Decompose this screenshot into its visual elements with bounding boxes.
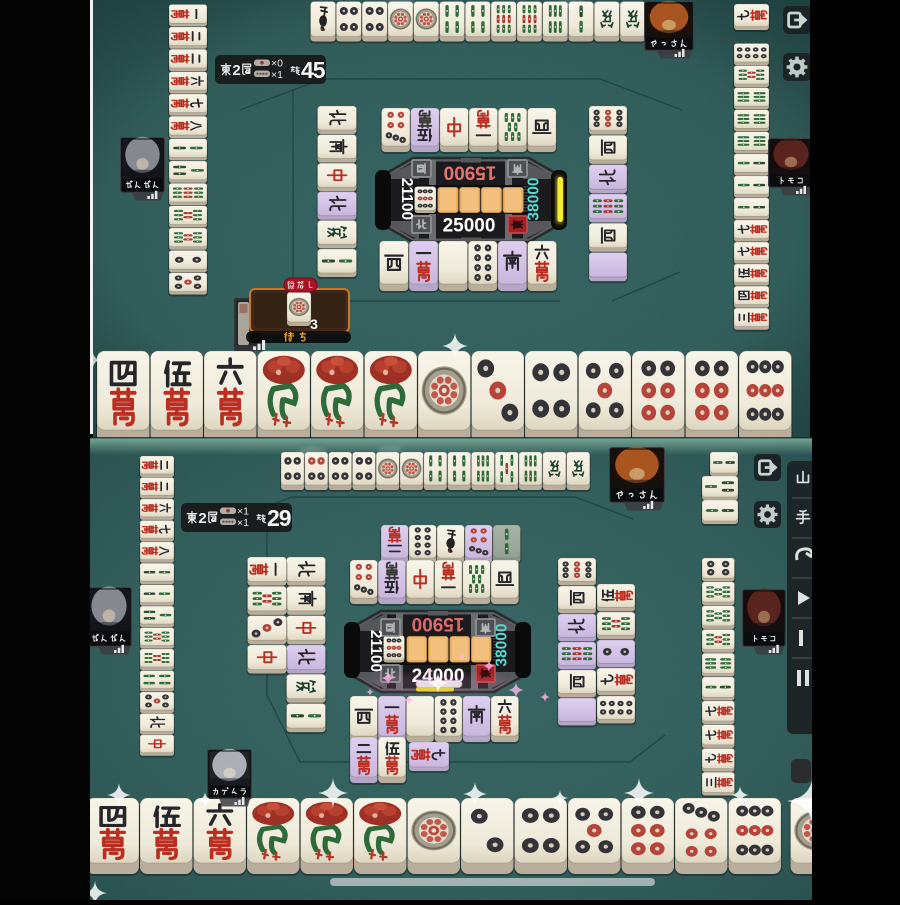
svg-text:38000: 38000 [494, 623, 511, 666]
svg-text:2: 2 [198, 510, 206, 527]
svg-text:×0: ×0 [271, 58, 283, 70]
svg-text:15900: 15900 [412, 613, 465, 634]
svg-text:3: 3 [310, 316, 318, 332]
svg-text:×1: ×1 [237, 506, 249, 518]
svg-text:2: 2 [232, 62, 240, 79]
svg-text:×1: ×1 [271, 69, 283, 81]
svg-text:×1: ×1 [237, 517, 249, 529]
svg-text:45: 45 [301, 57, 326, 83]
svg-text:15900: 15900 [444, 162, 497, 183]
svg-text:29: 29 [267, 505, 291, 531]
svg-text:25000: 25000 [443, 216, 496, 237]
svg-text:21100: 21100 [367, 630, 384, 672]
svg-text:21100: 21100 [398, 178, 415, 220]
svg-text:38000: 38000 [526, 177, 543, 220]
